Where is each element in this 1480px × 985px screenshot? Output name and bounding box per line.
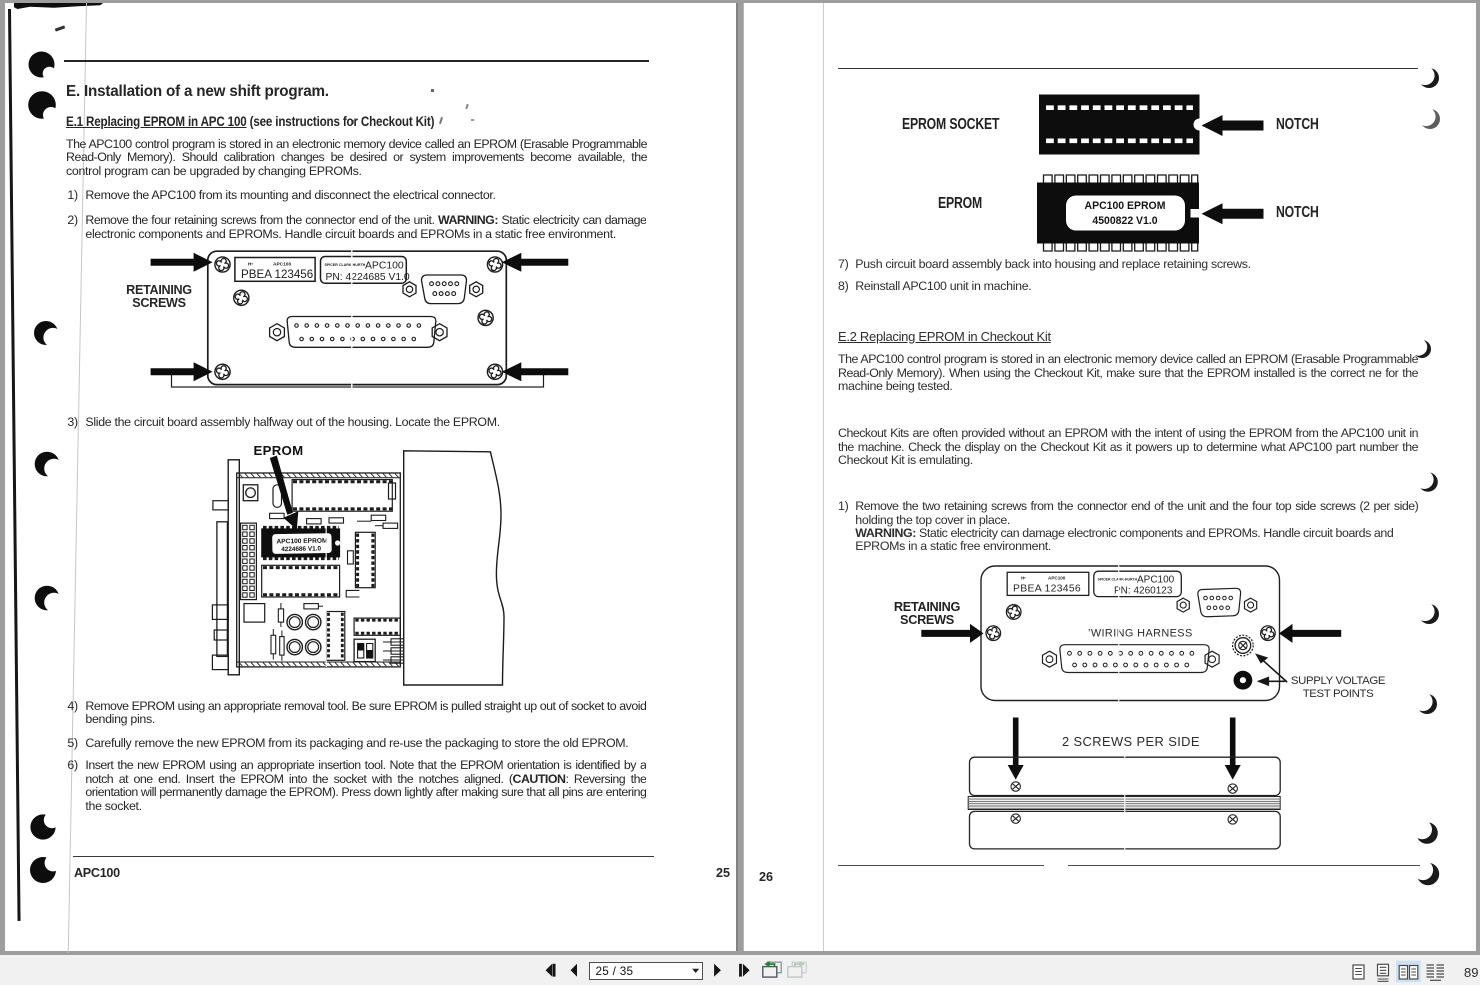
svg-text:4224686 V1.0: 4224686 V1.0 — [281, 545, 321, 553]
svg-text:SPICER CLARK-HURTH: SPICER CLARK-HURTH — [325, 263, 366, 267]
svg-text:APC100 EPROM: APC100 EPROM — [276, 538, 328, 546]
svg-text:APC100 EPROM: APC100 EPROM — [1085, 200, 1166, 212]
svg-text:PN: 4260123: PN: 4260123 — [1114, 586, 1173, 597]
svg-text:APC100: APC100 — [273, 262, 291, 268]
svg-text:PN: 4224685 V1.0: PN: 4224685 V1.0 — [326, 272, 410, 283]
svg-text:APC100: APC100 — [365, 261, 404, 272]
svg-text:’WIRING HARNESS: ’WIRING HARNESS — [1088, 628, 1193, 640]
svg-text:APC100: APC100 — [1137, 575, 1175, 586]
svg-text:H•: H• — [248, 262, 253, 267]
svg-text:4500822 V1.0: 4500822 V1.0 — [1092, 215, 1157, 227]
svg-text:EPROM: EPROM — [254, 443, 304, 458]
svg-text:APC100: APC100 — [1048, 576, 1066, 581]
svg-text:PBEA 123456: PBEA 123456 — [1013, 584, 1081, 595]
svg-text:H•: H• — [1021, 576, 1026, 581]
svg-text:PBEA 123456: PBEA 123456 — [241, 268, 313, 281]
svg-text:SPICER CLARK-HURTH: SPICER CLARK-HURTH — [1098, 578, 1138, 582]
